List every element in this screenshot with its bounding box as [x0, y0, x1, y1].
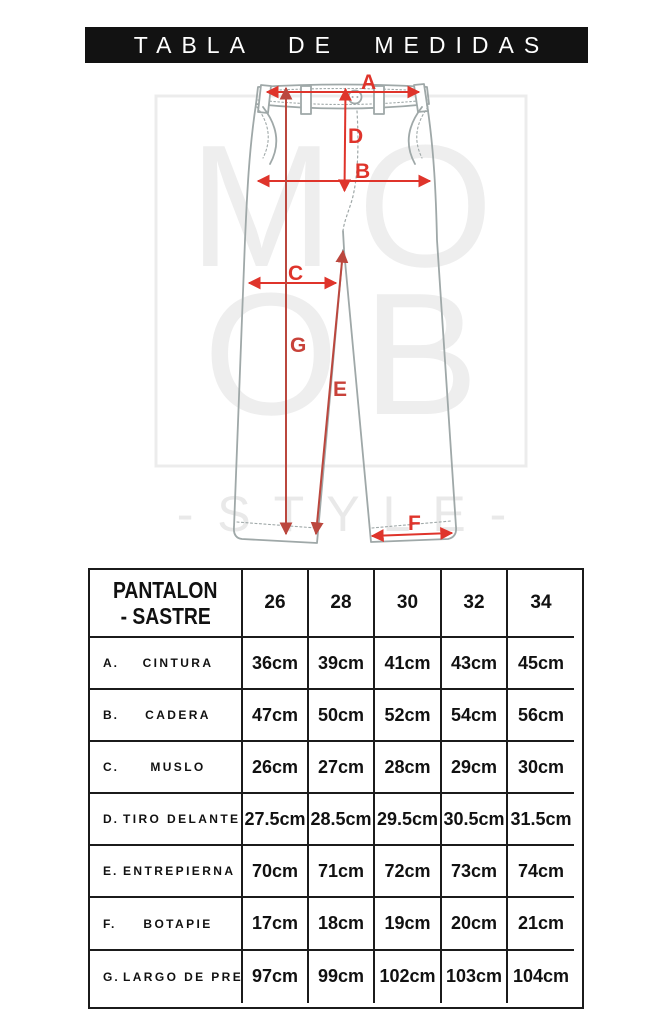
product-name-line2: - SASTRE [120, 603, 210, 629]
dim-label-d: D [348, 125, 363, 148]
measure-value-cell: 27cm [309, 742, 375, 794]
size-column-header: 28 [309, 570, 375, 638]
watermark-text-style: - S T Y L E - [177, 486, 512, 542]
measure-name: CADERA [123, 708, 233, 722]
dim-line-d [345, 89, 346, 191]
measure-value-cell: 39cm [309, 638, 375, 690]
waistband-stitch-bottom [258, 100, 427, 105]
dim-label-a: A [361, 71, 376, 94]
size-column-header: 34 [508, 570, 574, 638]
measure-letter: E. [103, 864, 123, 878]
measure-value-cell: 54cm [442, 690, 508, 742]
product-name-line1: PANTALON [113, 577, 217, 603]
size-guide-page: TABLA DE MEDIDAS MO OB - S T Y L E - [0, 0, 668, 1024]
measure-name: ENTREPIERNA [123, 864, 235, 878]
size-column-header: 30 [375, 570, 442, 638]
button-hole [352, 96, 354, 98]
measure-letter: D. [103, 812, 123, 826]
measure-value-cell: 50cm [309, 690, 375, 742]
button-hole [356, 96, 358, 98]
measure-row-label: A. CINTURA [90, 638, 243, 690]
measure-value-cell: 18cm [309, 898, 375, 950]
measure-value-cell: 28.5cm [309, 794, 375, 846]
measure-value-cell: 21cm [508, 898, 574, 950]
measure-value-cell: 28cm [375, 742, 442, 794]
measure-name: BOTAPIE [123, 917, 233, 931]
measure-letter: C. [103, 760, 123, 774]
measure-value-cell: 73cm [442, 846, 508, 898]
measure-row-label: E. ENTREPIERNA [90, 846, 243, 898]
measure-value-cell: 30cm [508, 742, 574, 794]
measure-value-cell: 20cm [442, 898, 508, 950]
measure-name: TIRO DELANTERO [123, 812, 243, 826]
dim-label-g: G [290, 334, 306, 357]
measure-value-cell: 104cm [508, 951, 574, 1003]
measure-value-cell: 52cm [375, 690, 442, 742]
measure-value-cell: 29cm [442, 742, 508, 794]
crotch-seam [343, 231, 344, 249]
measure-name: CINTURA [123, 656, 233, 670]
product-name-cell: PANTALON - SASTRE [90, 570, 243, 638]
measure-value-cell: 70cm [243, 846, 309, 898]
brand-watermark: MO OB - S T Y L E - [156, 96, 526, 542]
measure-letter: G. [103, 970, 123, 984]
size-column-header: 32 [442, 570, 508, 638]
dim-label-e: E [333, 378, 347, 401]
measure-value-cell: 47cm [243, 690, 309, 742]
measure-value-cell: 29.5cm [375, 794, 442, 846]
measure-letter: B. [103, 708, 123, 722]
measure-value-cell: 56cm [508, 690, 574, 742]
measure-value-cell: 97cm [243, 951, 309, 1003]
measure-value-cell: 102cm [375, 951, 442, 1003]
size-table: PANTALON - SASTRE 26 28 30 32 34 A. CINT… [88, 568, 584, 1009]
measure-value-cell: 99cm [309, 951, 375, 1003]
measure-value-cell: 31.5cm [508, 794, 574, 846]
dim-label-b: B [355, 160, 370, 183]
measure-row-label: F. BOTAPIE [90, 898, 243, 950]
dim-label-f: F [408, 512, 421, 535]
measure-value-cell: 74cm [508, 846, 574, 898]
waistband-stitch-top [260, 89, 425, 92]
measure-value-cell: 26cm [243, 742, 309, 794]
measure-row-label: B. CADERA [90, 690, 243, 742]
pants-measurement-diagram: MO OB - S T Y L E - [0, 0, 668, 560]
measure-name: LARGO DE PRENDA [123, 970, 243, 984]
size-column-header: 26 [243, 570, 309, 638]
measure-name: MUSLO [123, 760, 233, 774]
measure-value-cell: 41cm [375, 638, 442, 690]
belt-loop [301, 86, 311, 114]
measure-value-cell: 36cm [243, 638, 309, 690]
measure-value-cell: 27.5cm [243, 794, 309, 846]
measure-value-cell: 43cm [442, 638, 508, 690]
measure-value-cell: 71cm [309, 846, 375, 898]
measure-row-label: C. MUSLO [90, 742, 243, 794]
measure-value-cell: 72cm [375, 846, 442, 898]
measure-value-cell: 30.5cm [442, 794, 508, 846]
measure-value-cell: 19cm [375, 898, 442, 950]
measure-letter: F. [103, 917, 123, 931]
measure-value-cell: 45cm [508, 638, 574, 690]
measure-row-label: G. LARGO DE PRENDA [90, 951, 243, 1003]
dim-label-c: C [288, 262, 303, 285]
measure-letter: A. [103, 656, 123, 670]
measure-value-cell: 103cm [442, 951, 508, 1003]
measure-row-label: D. TIRO DELANTERO [90, 794, 243, 846]
measure-value-cell: 17cm [243, 898, 309, 950]
